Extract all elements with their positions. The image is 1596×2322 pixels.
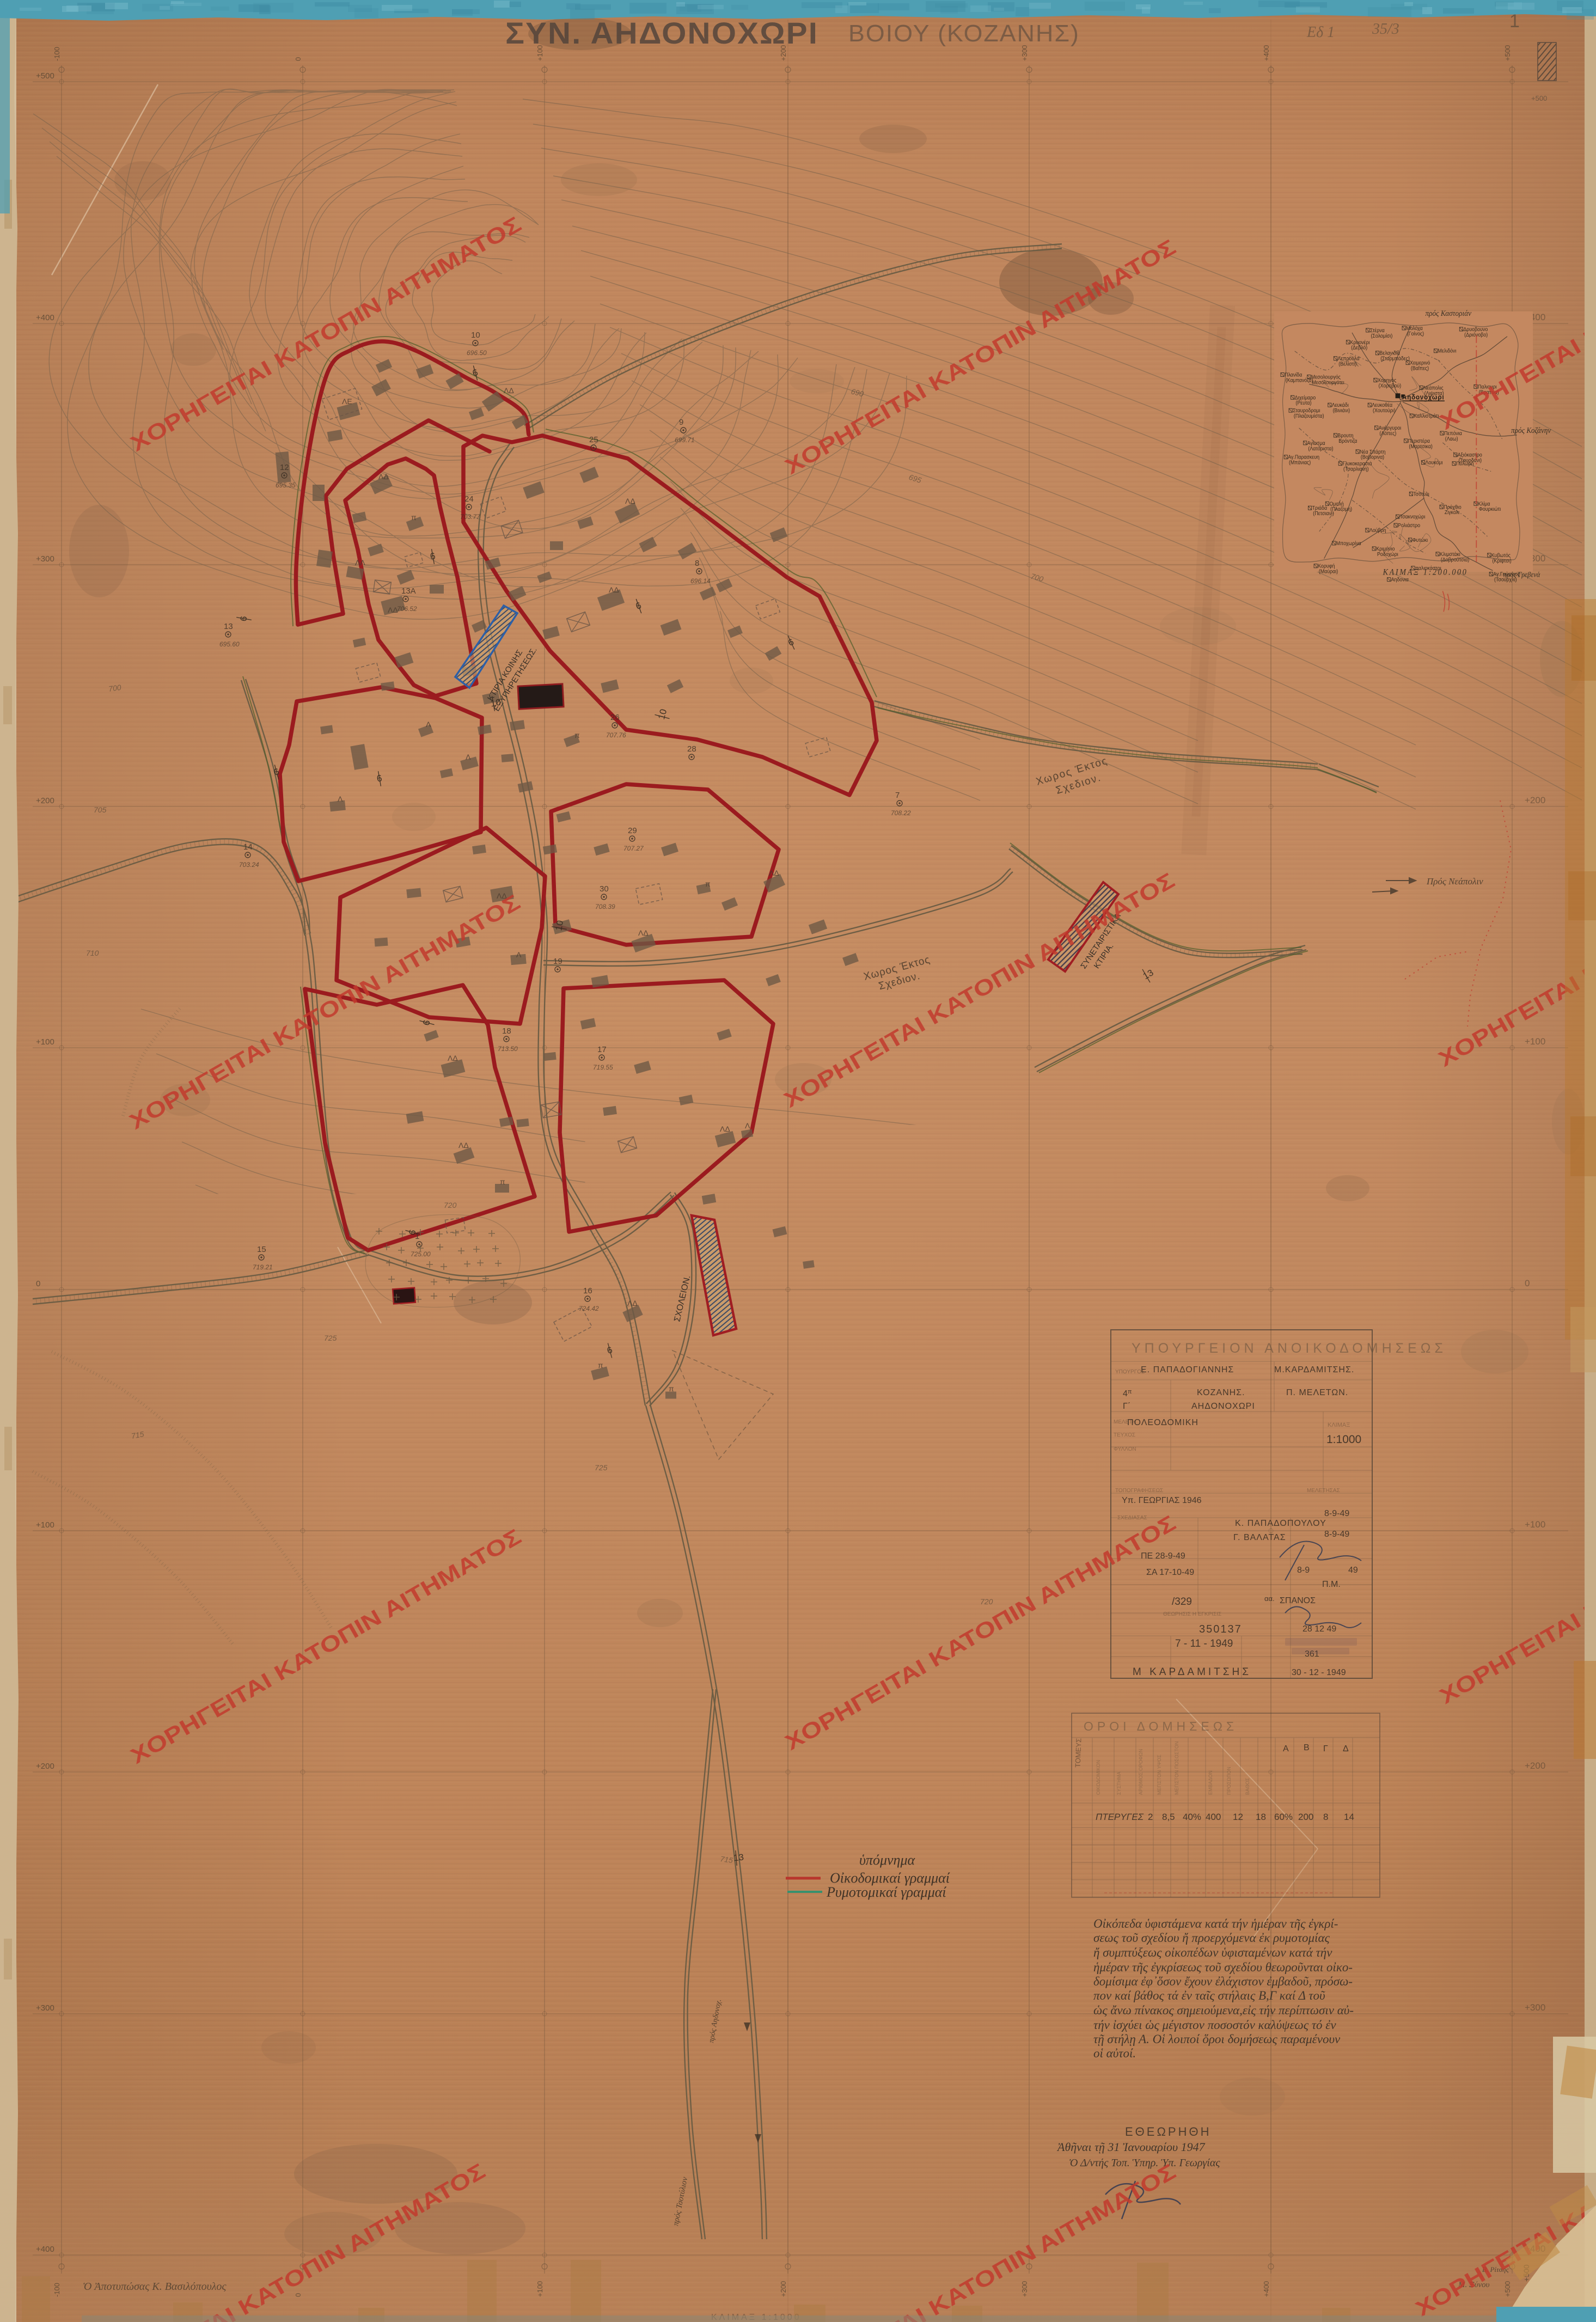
svg-text:+500: +500 xyxy=(1531,94,1547,102)
svg-text:ΛΔ: ΛΔ xyxy=(625,497,635,505)
svg-text:Π. ΜΕΛΕΤΩΝ.: Π. ΜΕΛΕΤΩΝ. xyxy=(1286,1388,1348,1397)
svg-text:Μ.ΚΑΡΔΑΜΙΤΣΗΣ.: Μ.ΚΑΡΔΑΜΙΤΣΗΣ. xyxy=(1274,1365,1354,1374)
svg-text:ΛΛ: ΛΛ xyxy=(355,558,365,567)
svg-text:ΛΔ: ΛΔ xyxy=(388,606,398,614)
svg-text:+400: +400 xyxy=(36,2245,54,2254)
svg-text:ΣΥΣΤΗΜΑ: ΣΥΣΤΗΜΑ xyxy=(1116,1771,1122,1795)
svg-text:/329: /329 xyxy=(1172,1596,1192,1608)
svg-text:ΤΕΥΧΟΣ: ΤΕΥΧΟΣ xyxy=(1114,1432,1135,1438)
svg-text:πρός Καστοριάν: πρός Καστοριάν xyxy=(1426,309,1472,318)
svg-text:720: 720 xyxy=(444,1201,457,1209)
svg-text:ΣΑ 17-10-49: ΣΑ 17-10-49 xyxy=(1146,1568,1194,1577)
svg-text:Λ: Λ xyxy=(338,795,343,803)
svg-text:10: 10 xyxy=(553,920,565,932)
svg-text:ΛΔ: ΛΔ xyxy=(458,1141,469,1150)
svg-text:30 - 12 - 1949: 30 - 12 - 1949 xyxy=(1292,1668,1346,1677)
svg-text:720: 720 xyxy=(980,1597,993,1606)
svg-text:+500: +500 xyxy=(1503,2281,1512,2297)
svg-text:19: 19 xyxy=(553,957,562,966)
svg-text:ΜΕΛΕΤΗΣΑΣ: ΜΕΛΕΤΗΣΑΣ xyxy=(1307,1488,1340,1494)
svg-text:28 12 49: 28 12 49 xyxy=(1303,1624,1336,1634)
svg-text:ΠΡΟΣΩΠΟΝ: ΠΡΟΣΩΠΟΝ xyxy=(1226,1767,1232,1795)
svg-text:8: 8 xyxy=(1323,1812,1328,1822)
svg-text:17: 17 xyxy=(597,1045,607,1054)
svg-text:ΤΟΠΟΓΡΑΦΗΣΕΩΣ: ΤΟΠΟΓΡΑΦΗΣΕΩΣ xyxy=(1115,1488,1163,1494)
svg-text:29: 29 xyxy=(628,826,637,835)
svg-text:ΚΟΖΑΝΗΣ.: ΚΟΖΑΝΗΣ. xyxy=(1197,1388,1245,1397)
svg-text:Μελιδόνι: Μελιδόνι xyxy=(1438,347,1457,354)
svg-text:200: 200 xyxy=(1298,1812,1313,1822)
svg-text:16: 16 xyxy=(583,1286,592,1296)
svg-text:-100: -100 xyxy=(53,2283,61,2297)
svg-text:Λ: Λ xyxy=(745,1121,750,1130)
svg-text:+100: +100 xyxy=(36,1520,54,1530)
svg-text:ΒΑΘΟΣ: ΒΑΘΟΣ xyxy=(1245,1777,1250,1795)
svg-text:(Σολομίσι): (Σολομίσι) xyxy=(1371,332,1392,339)
svg-text:Αηδονοχωρι: Αηδονοχωρι xyxy=(1402,393,1445,401)
svg-text:Δ: Δ xyxy=(1343,1744,1349,1753)
svg-text:13: 13 xyxy=(224,622,233,631)
svg-text:13Α: 13Α xyxy=(401,586,416,596)
svg-text:Εδ 1: Εδ 1 xyxy=(1306,24,1335,41)
svg-text:οἱ αὐτοί.: οἱ αὐτοί. xyxy=(1093,2046,1136,2060)
svg-text:Λ: Λ xyxy=(466,753,471,761)
svg-text:ΜΕΛΕΤΗ: ΜΕΛΕΤΗ xyxy=(1114,1419,1136,1425)
svg-text:+300: +300 xyxy=(36,554,54,564)
svg-text:+200: +200 xyxy=(1525,795,1545,805)
svg-text:+400: +400 xyxy=(1262,45,1270,61)
svg-text:715: 715 xyxy=(720,1854,734,1865)
svg-text:13: 13 xyxy=(733,1852,744,1863)
svg-text:ΛΔ: ΛΔ xyxy=(769,869,779,877)
svg-text:αα.: αα. xyxy=(1264,1594,1275,1603)
svg-text:+500: +500 xyxy=(1503,45,1512,61)
svg-text:ΛΕ: ΛΕ xyxy=(342,397,352,406)
svg-text:ΚΛΙΜΑΞ 1:200.000: ΚΛΙΜΑΞ 1:200.000 xyxy=(1383,568,1468,577)
svg-text:π: π xyxy=(574,731,580,740)
svg-text:12: 12 xyxy=(280,463,289,472)
svg-text:Β: Β xyxy=(1304,1743,1310,1752)
svg-text:(Μπάνιας): (Μπάνιας) xyxy=(1289,459,1311,466)
svg-text:Υπ. ΓΕΩΡΓΙΑΣ 1946: Υπ. ΓΕΩΡΓΙΑΣ 1946 xyxy=(1122,1496,1202,1505)
svg-text:719.21: 719.21 xyxy=(253,1263,273,1271)
svg-text:+100: +100 xyxy=(536,2281,544,2297)
svg-text:706.52: 706.52 xyxy=(397,605,417,613)
svg-text:ἡμέραν τῆς ἐγκρίσεως τοῦ σχεδί: ἡμέραν τῆς ἐγκρίσεως τοῦ σχεδίου θεωροῦν… xyxy=(1093,1960,1353,1974)
svg-text:ΜΕΓΙΣΤΟΝ ΥΨΟΣ: ΜΕΓΙΣΤΟΝ ΥΨΟΣ xyxy=(1157,1755,1162,1795)
svg-text:Α: Α xyxy=(1283,1744,1289,1753)
svg-text:707.27: 707.27 xyxy=(623,845,644,852)
svg-text:Τσακνοχώρι: Τσακνοχώρι xyxy=(1400,514,1426,520)
svg-text:(Βελίστι): (Βελίστι) xyxy=(1338,360,1356,367)
svg-text:Γ΄: Γ΄ xyxy=(1123,1402,1130,1411)
svg-text:24: 24 xyxy=(464,494,474,504)
svg-text:ΛΔ: ΛΔ xyxy=(638,928,649,937)
svg-text:710: 710 xyxy=(86,949,99,957)
svg-text:πον καί βάθος τά ἐν ταῖς στήλα: πον καί βάθος τά ἐν ταῖς στήλαις Β,Γ καί… xyxy=(1093,1989,1325,2002)
svg-text:350137: 350137 xyxy=(1199,1623,1242,1635)
svg-text:0: 0 xyxy=(36,1279,40,1288)
svg-text:Οἰκόπεδα ὑφιστάμενα κατά τήν ἡ: Οἰκόπεδα ὑφιστάμενα κατά τήν ἡμέραν τῆς … xyxy=(1093,1917,1338,1930)
svg-text:(Χορηβού): (Χορηβού) xyxy=(1379,382,1401,389)
svg-text:ΠΕ 28-9-49: ΠΕ 28-9-49 xyxy=(1141,1551,1185,1561)
svg-text:ΣΧΕΔΙΑΣΑΣ: ΣΧΕΔΙΑΣΑΣ xyxy=(1117,1515,1147,1521)
svg-text:ΒΟΙΟΥ (ΚΟΖΑΝΗΣ): ΒΟΙΟΥ (ΚΟΖΑΝΗΣ) xyxy=(848,20,1080,47)
svg-text:18: 18 xyxy=(1256,1812,1266,1822)
svg-text:25: 25 xyxy=(589,435,598,444)
svg-text:πρός Κοζάνην: πρός Κοζάνην xyxy=(1511,426,1551,435)
svg-text:δομίσιμα ἐφ᾽ὅσον ἔχουν ἐλάχιστ: δομίσιμα ἐφ᾽ὅσον ἔχουν ἐλάχιστον ἐμβαδοῦ… xyxy=(1093,1975,1353,1988)
svg-text:Ἀθῆναι τῇ 31 Ἰανουαρίου 1947: Ἀθῆναι τῇ 31 Ἰανουαρίου 1947 xyxy=(1056,2140,1206,2154)
svg-text:+400: +400 xyxy=(36,313,54,322)
svg-text:60%: 60% xyxy=(1274,1812,1293,1822)
svg-text:14: 14 xyxy=(243,842,253,852)
svg-text:ΤΟΜΕΥΣ: ΤΟΜΕΥΣ xyxy=(1074,1738,1083,1768)
svg-text:ΚΛΙΜΑΞ: ΚΛΙΜΑΞ xyxy=(1328,1422,1350,1428)
svg-text:7 - 11 - 1949: 7 - 11 - 1949 xyxy=(1175,1638,1233,1649)
svg-text:ΛΔ: ΛΔ xyxy=(627,1299,638,1307)
svg-text:(Πετσιανι): (Πετσιανι) xyxy=(1313,510,1334,517)
svg-text:(Βαΐπες): (Βαΐπες) xyxy=(1411,365,1429,371)
svg-text:+500: +500 xyxy=(36,71,54,81)
svg-text:Οἰκοδομικαί γραμμαί: Οἰκοδομικαί γραμμαί xyxy=(830,1870,950,1886)
svg-text:695.60: 695.60 xyxy=(219,640,240,648)
svg-text:π: π xyxy=(598,1361,603,1370)
svg-text:(Βινιάνι): (Βινιάνι) xyxy=(1333,407,1350,414)
svg-text:ΛΔ: ΛΔ xyxy=(448,1054,458,1062)
svg-text:725.00: 725.00 xyxy=(411,1250,431,1258)
svg-text:26: 26 xyxy=(610,713,620,722)
svg-text:ΑΡΙΘΜΟΣ ΟΡΟΦΩΝ: ΑΡΙΘΜΟΣ ΟΡΟΦΩΝ xyxy=(1138,1749,1144,1795)
svg-text:ὑπόμνημα: ὑπόμνημα xyxy=(859,1852,915,1868)
svg-text:+300: +300 xyxy=(1020,2281,1029,2297)
svg-text:ΟΙΚΟΔΟΜΙΚΟΝ: ΟΙΚΟΔΟΜΙΚΟΝ xyxy=(1096,1760,1101,1795)
svg-text:(Λατοριστα): (Λατοριστα) xyxy=(1308,445,1333,451)
svg-text:+300: +300 xyxy=(1525,2002,1545,2013)
svg-text:(Λαω): (Λαω) xyxy=(1445,435,1458,442)
svg-text:π: π xyxy=(705,879,711,888)
svg-text:Μ ΚΑΡΔΑΜΙΤΣΗΣ: Μ ΚΑΡΔΑΜΙΤΣΗΣ xyxy=(1133,1666,1251,1678)
svg-text:8-9: 8-9 xyxy=(1297,1566,1310,1575)
svg-text:Λ: Λ xyxy=(426,720,431,729)
svg-text:724.42: 724.42 xyxy=(579,1305,599,1312)
svg-text:+400: +400 xyxy=(1262,2281,1270,2297)
svg-text:1:1000: 1:1000 xyxy=(1326,1433,1361,1446)
svg-text:+300: +300 xyxy=(1020,45,1029,61)
svg-text:τῇ στήλῃ Α. Οἱ λοιποί ὅροι δομ: τῇ στήλῃ Α. Οἱ λοιποί ὅροι δομήσεως παρα… xyxy=(1093,2032,1341,2046)
svg-text:σεως τοῦ σχεδίου ἤ προερχόμενα: σεως τοῦ σχεδίου ἤ προερχόμενα ἐκ ρυμοτο… xyxy=(1093,1931,1330,1945)
svg-text:28: 28 xyxy=(687,744,696,754)
svg-text:Φουρκιώτι: Φουρκιώτι xyxy=(1479,506,1501,512)
svg-text:30: 30 xyxy=(600,884,609,894)
svg-text:Γ. ΒΑΛΑΤΑΣ: Γ. ΒΑΛΑΤΑΣ xyxy=(1233,1533,1286,1542)
svg-text:(Μαρτσικα): (Μαρτσικα) xyxy=(1409,443,1432,449)
svg-text:Ρολιάστρο: Ρολιάστρο xyxy=(1398,522,1420,529)
svg-text:(Κριφτσι): (Κριφτσι) xyxy=(1493,557,1512,564)
svg-text:ΛΔ: ΛΔ xyxy=(378,472,389,481)
svg-text:Μεσολουργότει: Μεσολουργότει xyxy=(1312,379,1344,386)
svg-text:ΕΜΒΑΔΟΝ: ΕΜΒΑΔΟΝ xyxy=(1208,1770,1213,1795)
svg-text:Βρόντιζα: Βρόντιζα xyxy=(1338,437,1357,444)
svg-text:713.50: 713.50 xyxy=(498,1045,518,1053)
svg-text:(Καμπανόζα): (Καμπανόζα) xyxy=(1286,377,1313,383)
svg-text:Τσοτύλι: Τσοτύλι xyxy=(1413,491,1429,497)
svg-text:Πρός Νεάπολιν: Πρός Νεάπολιν xyxy=(1426,876,1483,887)
svg-text:π: π xyxy=(500,1177,505,1186)
svg-text:35/3: 35/3 xyxy=(1372,21,1399,38)
svg-text:Φυτώκι: Φυτώκι xyxy=(1412,536,1428,543)
svg-text:πρός Γρεβενά: πρός Γρεβενά xyxy=(1503,570,1540,579)
svg-text:(Μαύραι): (Μαύραι) xyxy=(1319,568,1338,575)
svg-text:ὡς ἄνω πίνακος σημειούμενα,εἰς: ὡς ἄνω πίνακος σημειούμενα,εἰς τήν περίπ… xyxy=(1093,2003,1354,2017)
svg-text:(Δεβλό): (Δεβλό) xyxy=(1351,344,1367,351)
svg-text:+300: +300 xyxy=(36,2003,54,2013)
svg-text:14: 14 xyxy=(1344,1812,1354,1822)
svg-text:696.50: 696.50 xyxy=(467,349,487,357)
svg-text:Ροδοχώρι: Ροδοχώρι xyxy=(1377,551,1398,557)
svg-text:Μποχωρίνα: Μποχωρίνα xyxy=(1336,540,1361,546)
svg-text:(Πλαζουμίστα): (Πλαζουμίστα) xyxy=(1294,413,1324,419)
svg-text:ΥΠΟΥΡΓΕΙΟΝ ΑΝΟΙΚΟΔΟΜΗΣΕΩΣ: ΥΠΟΥΡΓΕΙΟΝ ΑΝΟΙΚΟΔΟΜΗΣΕΩΣ xyxy=(1132,1341,1447,1356)
svg-text:Ρυμοτομικαί γραμμαί: Ρυμοτομικαί γραμμαί xyxy=(826,1884,946,1900)
svg-text:τήν ἰσχύει ὡς μέγιστον ποσοστό: τήν ἰσχύει ὡς μέγιστον ποσοστόν καλύψεως… xyxy=(1093,2018,1336,2032)
svg-text:(Γοίνος): (Γοίνος) xyxy=(1407,330,1424,337)
svg-text:ΟΡΟΙ ΔΟΜΗΣΕΩΣ: ΟΡΟΙ ΔΟΜΗΣΕΩΣ xyxy=(1084,1719,1238,1733)
svg-text:ΛΔ: ΛΔ xyxy=(609,585,619,594)
svg-text:695.35: 695.35 xyxy=(276,481,296,489)
svg-text:+200: +200 xyxy=(779,2281,787,2297)
svg-text:(Δοβρούτσια): (Δοβρούτσια) xyxy=(1441,556,1469,563)
svg-text:699.71: 699.71 xyxy=(675,436,695,444)
svg-text:8,5: 8,5 xyxy=(1162,1812,1175,1822)
svg-text:708.39: 708.39 xyxy=(595,903,615,911)
svg-text:(Λόπες): (Λόπες) xyxy=(1379,430,1396,436)
svg-text:-100: -100 xyxy=(53,47,61,61)
svg-text:8-9-49: 8-9-49 xyxy=(1324,1530,1349,1539)
svg-text:(Σταρμπάδες): (Σταρμπάδες) xyxy=(1380,355,1410,362)
svg-text:ΑΗΔΟΝΟΧΩΡΙ: ΑΗΔΟΝΟΧΩΡΙ xyxy=(1191,1402,1255,1411)
svg-text:49: 49 xyxy=(1348,1566,1358,1575)
svg-text:Ζιγκολι: Ζιγκολι xyxy=(1445,509,1459,516)
svg-text:703.24: 703.24 xyxy=(239,861,259,869)
svg-text:ΘΕΩΡΗΣΙΣ Η ΕΓΚΡΙΣΙΣ: ΘΕΩΡΗΣΙΣ Η ΕΓΚΡΙΣΙΣ xyxy=(1163,1611,1221,1617)
svg-text:0: 0 xyxy=(294,2293,302,2297)
svg-text:ΜΕΓΙΣΤΟΝ ΠΟΣΟΣΤΟΝ: ΜΕΓΙΣΤΟΝ ΠΟΣΟΣΤΟΝ xyxy=(1174,1741,1179,1795)
svg-text:2: 2 xyxy=(1148,1812,1153,1822)
svg-text:(Τσαρλιανή): (Τσαρλιανή) xyxy=(1343,466,1369,472)
svg-text:Λούβρη: Λούβρη xyxy=(1369,527,1386,534)
svg-text:Π.Μ.: Π.Μ. xyxy=(1322,1580,1341,1589)
svg-text:703.77: 703.77 xyxy=(460,513,481,521)
svg-text:π: π xyxy=(411,513,417,522)
svg-text:ΛΔ: ΛΔ xyxy=(504,386,514,395)
svg-text:+100: +100 xyxy=(36,1037,54,1047)
svg-text:Ε. ΠΑΠΑΔΟΓΙΑΝΝΗΣ: Ε. ΠΑΠΑΔΟΓΙΑΝΝΗΣ xyxy=(1141,1365,1234,1374)
svg-text:ΕΘΕΩΡΗΘΗ: ΕΘΕΩΡΗΘΗ xyxy=(1125,2125,1211,2138)
svg-text:Λ: Λ xyxy=(516,950,522,959)
svg-text:40%: 40% xyxy=(1183,1812,1201,1822)
svg-text:+100: +100 xyxy=(1525,1519,1545,1530)
svg-text:719.55: 719.55 xyxy=(593,1064,613,1071)
svg-text:ἤ συμπτύξεως οἰκοπέδων ὑφισταμ: ἤ συμπτύξεως οἰκοπέδων ὑφισταμένων κατά … xyxy=(1093,1946,1332,1959)
svg-text:696.14: 696.14 xyxy=(690,577,711,585)
svg-text:ΠΤΕΡΥΓΕΣ: ΠΤΕΡΥΓΕΣ xyxy=(1096,1812,1144,1822)
svg-text:707.76: 707.76 xyxy=(606,731,626,739)
svg-text:400: 400 xyxy=(1206,1812,1221,1822)
svg-text:0: 0 xyxy=(1525,1278,1530,1288)
svg-text:ΠΟΛΕΟΔΟΜΙΚΗ: ΠΟΛΕΟΔΟΜΙΚΗ xyxy=(1127,1418,1198,1427)
svg-text:725: 725 xyxy=(595,1463,608,1472)
svg-text:8: 8 xyxy=(695,559,699,568)
svg-text:7: 7 xyxy=(895,791,900,800)
svg-text:8-9-49: 8-9-49 xyxy=(1324,1509,1349,1518)
svg-text:Γ: Γ xyxy=(1323,1744,1328,1753)
svg-text:12: 12 xyxy=(1233,1812,1243,1822)
svg-text:708.22: 708.22 xyxy=(891,809,911,817)
svg-text:Λουκόμι: Λουκόμι xyxy=(1426,459,1443,466)
svg-text:Πυλωρή: Πυλωρή xyxy=(1456,460,1473,467)
svg-text:10: 10 xyxy=(471,331,480,340)
svg-text:0: 0 xyxy=(294,57,302,61)
svg-text:+200: +200 xyxy=(36,1762,54,1771)
svg-text:18: 18 xyxy=(502,1026,511,1036)
svg-text:ΛΔ: ΛΔ xyxy=(720,1125,730,1133)
svg-text:+200: +200 xyxy=(1525,1761,1545,1771)
svg-text:Ὁ Ἀποτυπώσας Κ. Βασιλόπου: Ὁ Ἀποτυπώσας Κ. Βασιλόπουλος xyxy=(83,2281,227,2293)
svg-text:ΦΥΛΛΟΝ: ΦΥΛΛΟΝ xyxy=(1114,1446,1136,1452)
svg-text:(Βοβορινα): (Βοβορινα) xyxy=(1361,454,1384,460)
svg-text:700: 700 xyxy=(108,683,122,693)
svg-text:705: 705 xyxy=(94,805,107,814)
svg-text:(Χουτούρι): (Χουτούρι) xyxy=(1373,407,1396,414)
svg-text:Ὁ Δ/ντής Τοπ. Ὑπηρ. Ὑπ. Γεωργ: Ὁ Δ/ντής Τοπ. Ὑπηρ. Ὑπ. Γεωργίας xyxy=(1069,2157,1220,2169)
svg-text:725: 725 xyxy=(324,1334,337,1342)
svg-text:ΣΥΝ. ΑΗΔΟΝΟΧΩΡΙ: ΣΥΝ. ΑΗΔΟΝΟΧΩΡΙ xyxy=(505,16,818,50)
svg-text:ΣΠΑΝΟΣ: ΣΠΑΝΟΣ xyxy=(1280,1596,1316,1605)
svg-text:π: π xyxy=(669,1384,674,1393)
svg-text:Κ. ΠΑΠΑΔΟΠΟΥΛΟΥ: Κ. ΠΑΠΑΔΟΠΟΥΛΟΥ xyxy=(1235,1519,1326,1528)
svg-text:(Ρευτα): (Ρευτα) xyxy=(1295,400,1311,406)
svg-text:+200: +200 xyxy=(36,796,54,805)
svg-text:+100: +100 xyxy=(1525,1036,1545,1047)
svg-text:15: 15 xyxy=(257,1245,266,1254)
svg-text:9: 9 xyxy=(679,418,683,427)
